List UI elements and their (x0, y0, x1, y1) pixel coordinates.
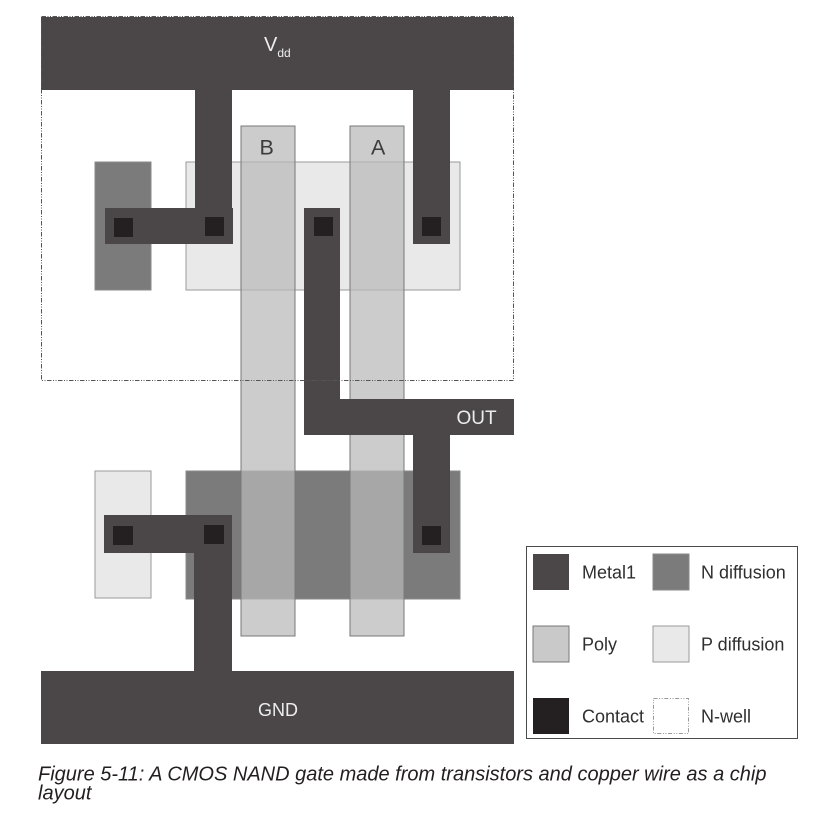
svg-text:GND: GND (258, 700, 298, 720)
svg-text:Figure 5-11: A CMOS NAND gate: Figure 5-11: A CMOS NAND gate made from … (38, 764, 766, 786)
svg-text:Poly: Poly (582, 635, 617, 655)
svg-text:P diffusion: P diffusion (701, 635, 784, 655)
svg-text:Metal1: Metal1 (582, 563, 636, 583)
svg-text:N diffusion: N diffusion (701, 563, 786, 583)
svg-text:N-well: N-well (701, 707, 751, 727)
svg-text:OUT: OUT (457, 408, 498, 429)
svg-text:layout: layout (38, 783, 93, 805)
svg-text:Contact: Contact (582, 707, 644, 727)
svg-text:A: A (371, 136, 386, 160)
svg-text:B: B (260, 136, 274, 160)
